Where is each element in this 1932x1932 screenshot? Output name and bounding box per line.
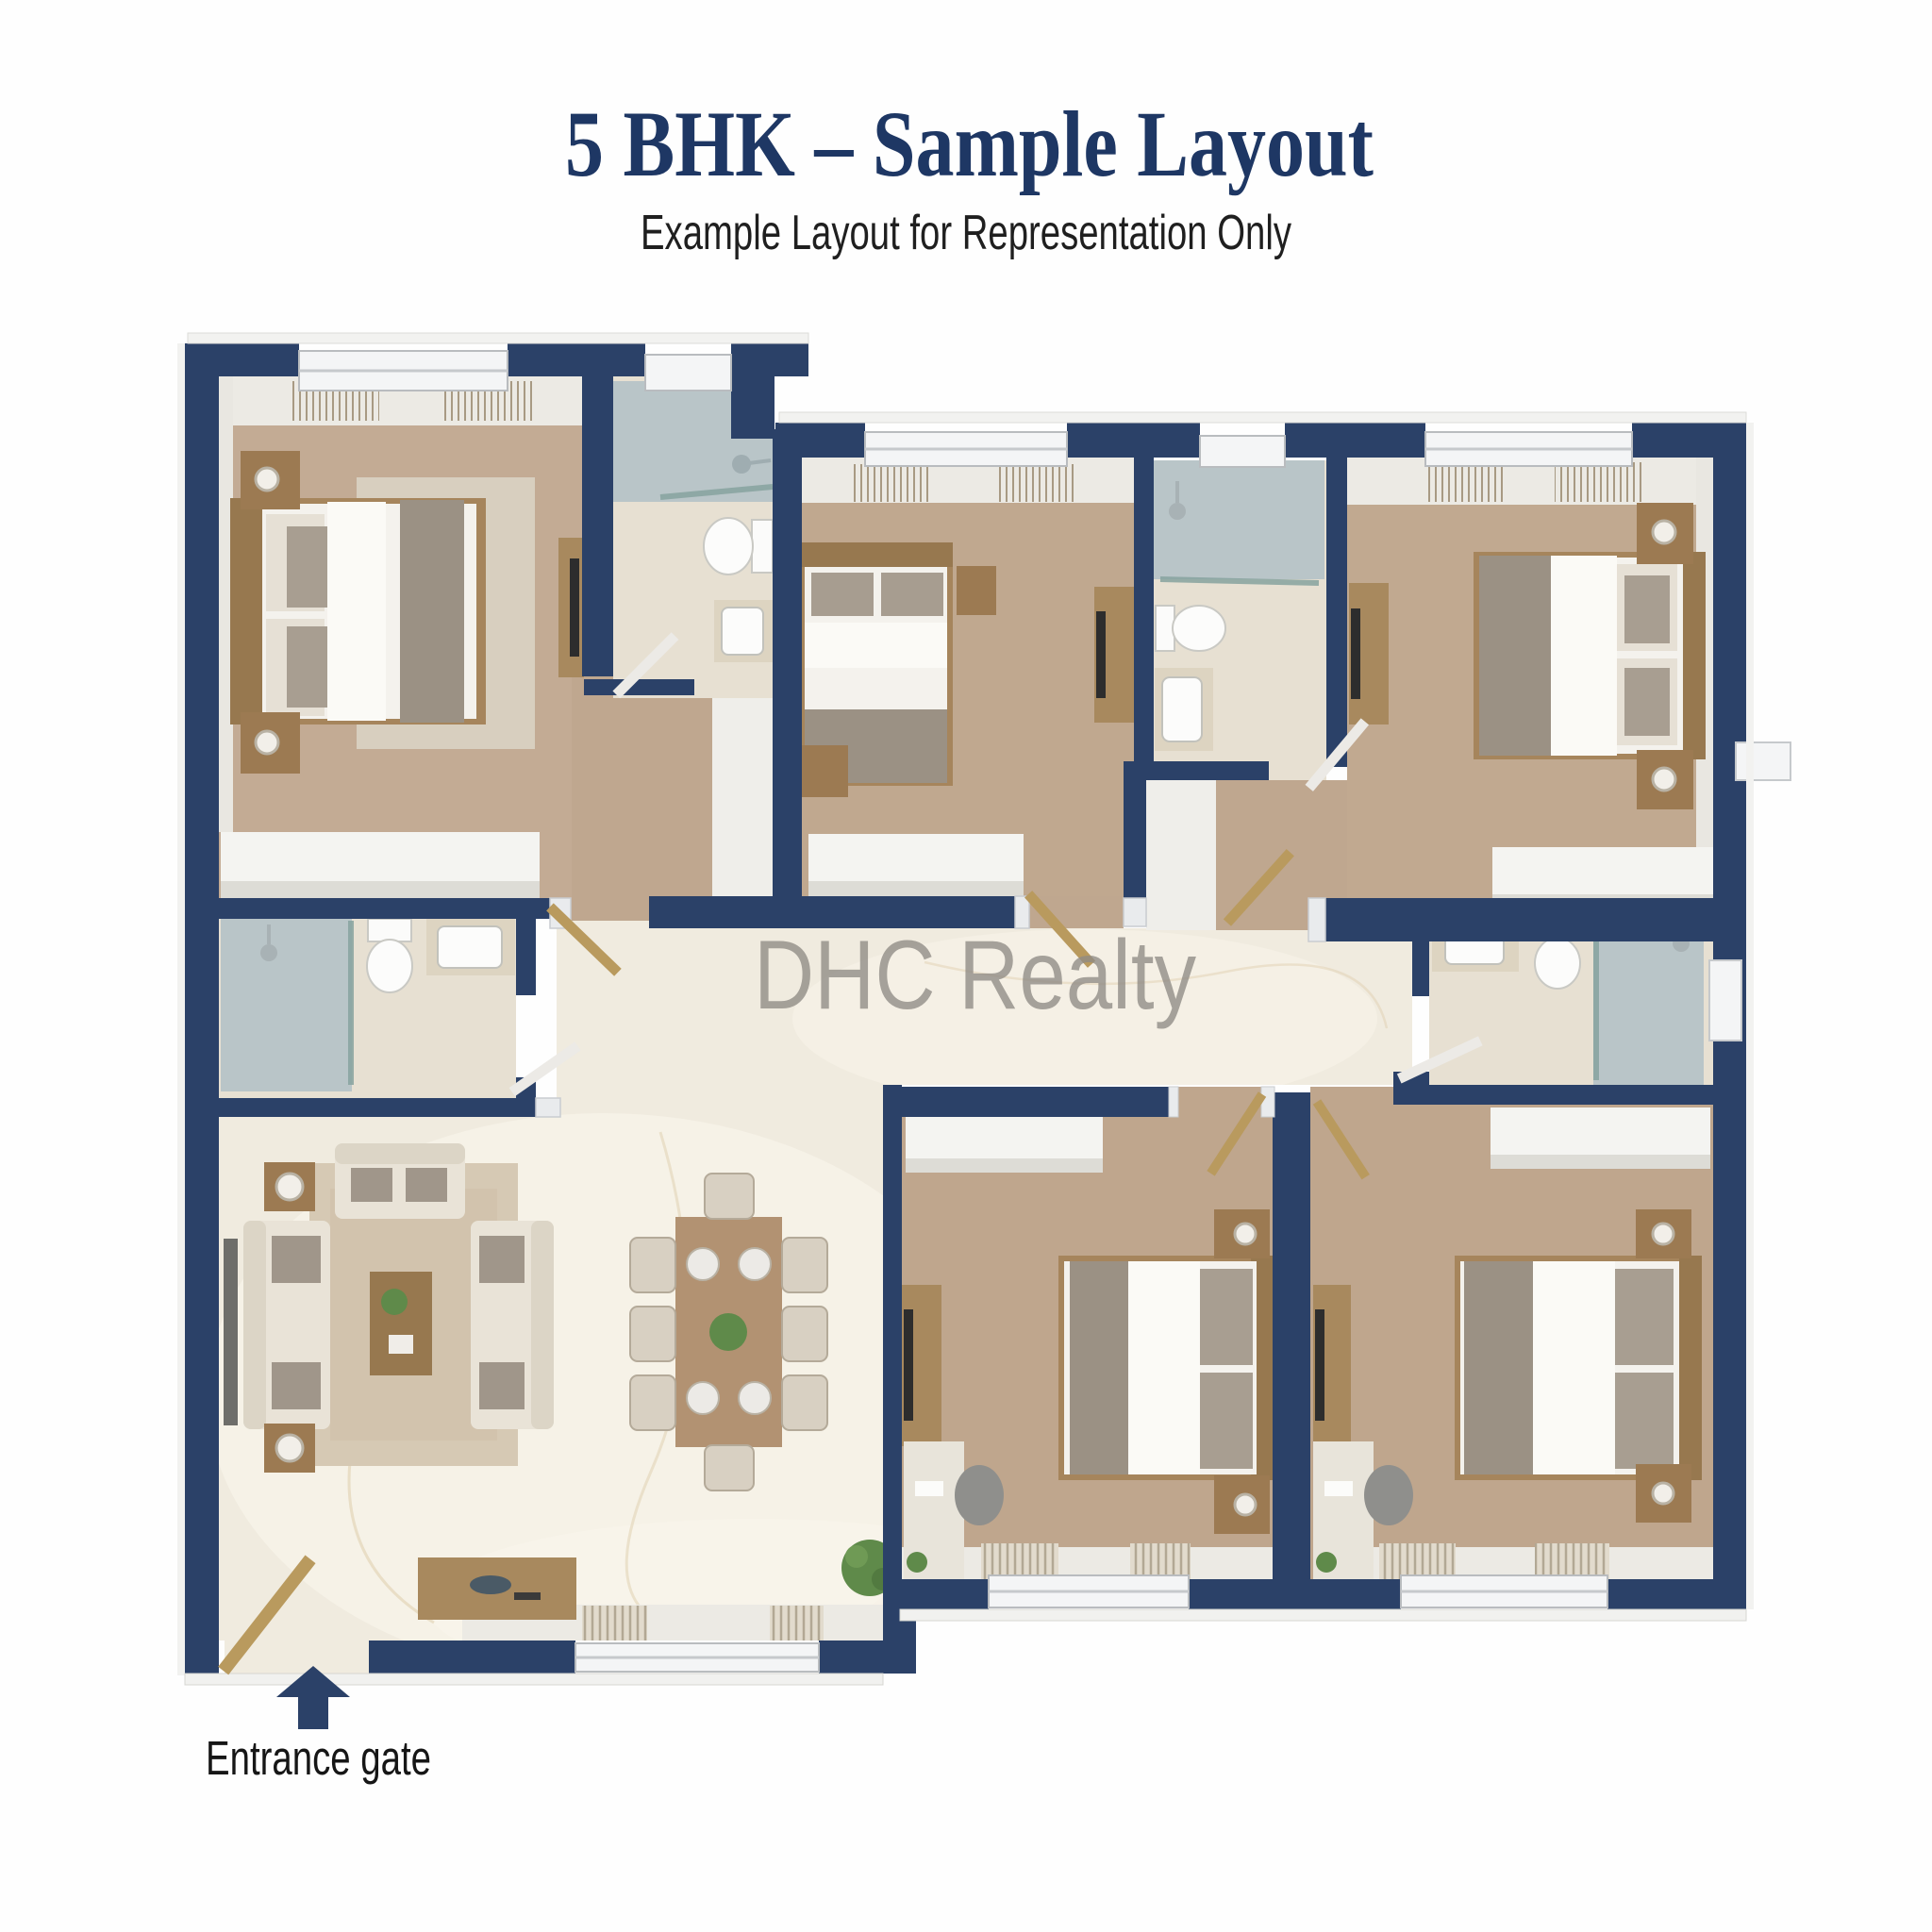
svg-text:Example Layout for Representat: Example Layout for Representation Only bbox=[641, 206, 1291, 260]
svg-text:DHC Realty: DHC Realty bbox=[754, 921, 1196, 1030]
svg-text:5 BHK – Sample Layout: 5 BHK – Sample Layout bbox=[565, 92, 1374, 196]
svg-text:Entrance gate: Entrance gate bbox=[206, 1731, 431, 1785]
